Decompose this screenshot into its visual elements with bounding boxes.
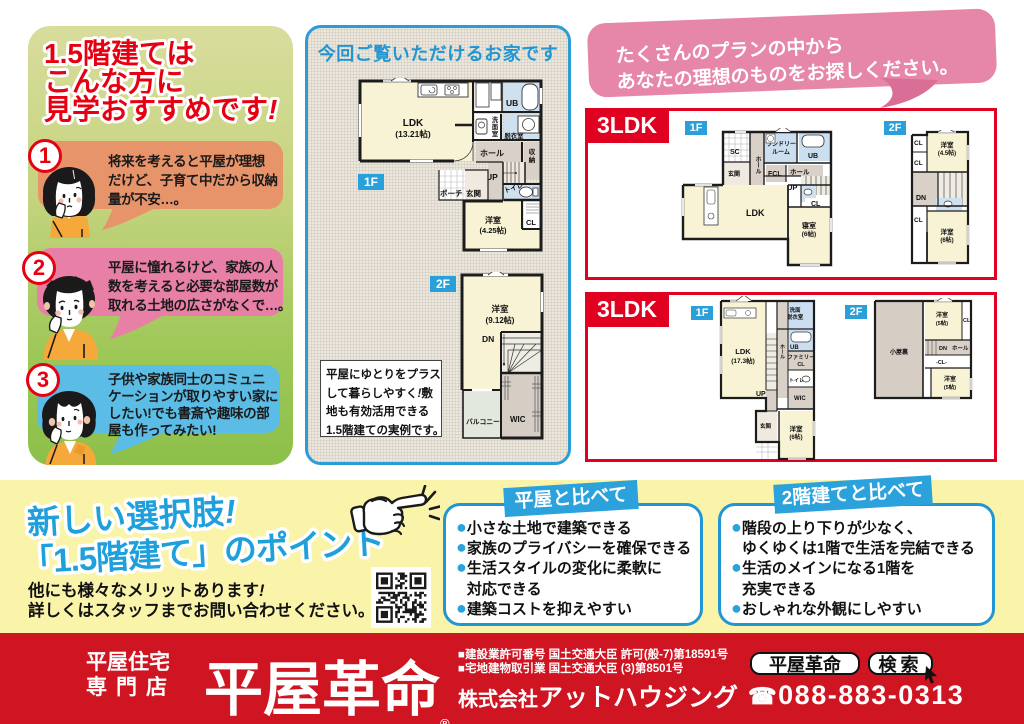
svg-text:玄関: 玄関: [466, 188, 481, 198]
svg-text:ホール: ホール: [480, 149, 504, 158]
svg-text:洋室: 洋室: [944, 375, 956, 383]
svg-text:-CL-: -CL-: [936, 360, 947, 366]
svg-text:室: 室: [492, 129, 499, 138]
svg-text:ポーチ: ポーチ: [440, 188, 463, 198]
svg-text:たくさんのプランの中から: たくさんのプランの中から: [615, 34, 844, 67]
svg-text:CL: CL: [914, 140, 923, 147]
svg-text:玄関: 玄関: [760, 422, 772, 430]
svg-text:脱衣室: 脱衣室: [787, 313, 804, 321]
svg-text:見学おすすめです!: 見学おすすめです!: [44, 93, 277, 125]
svg-text:ホール: ホール: [952, 345, 969, 352]
svg-text:DN: DN: [482, 334, 494, 344]
svg-text:洗面: 洗面: [789, 306, 801, 314]
svg-text:UB: UB: [790, 345, 799, 351]
svg-text:洗: 洗: [492, 115, 499, 124]
svg-text:CL: CL: [914, 217, 923, 224]
svg-text:(13.21帖): (13.21帖): [395, 129, 431, 139]
svg-text:トイレ: トイレ: [789, 378, 804, 384]
svg-text:(17.3帖): (17.3帖): [731, 356, 754, 365]
svg-text:洋室: 洋室: [941, 227, 955, 236]
svg-text:LDK: LDK: [735, 347, 751, 356]
svg-text:面: 面: [492, 123, 499, 131]
svg-text:(6帖): (6帖): [789, 433, 802, 441]
svg-text:CL: CL: [797, 362, 805, 368]
svg-text:DN: DN: [939, 346, 947, 352]
svg-text:(9.12帖): (9.12帖): [486, 315, 515, 325]
svg-text:CL: CL: [914, 160, 923, 167]
svg-text:(6帖): (6帖): [802, 229, 816, 238]
svg-text:(6帖): (6帖): [940, 236, 953, 244]
svg-text:CL: CL: [526, 218, 536, 227]
svg-text:ファミリー: ファミリー: [787, 354, 815, 361]
svg-text:ホール: ホール: [790, 168, 810, 176]
svg-text:DN: DN: [916, 195, 926, 202]
svg-text:洋室: 洋室: [936, 311, 948, 319]
svg-text:ホール: ホール: [779, 343, 785, 359]
svg-text:洋室: 洋室: [790, 424, 804, 433]
svg-text:寝室: 寝室: [802, 221, 816, 230]
svg-text:収: 収: [529, 147, 536, 156]
svg-text:洋室: 洋室: [941, 140, 955, 149]
svg-text:ホール: ホール: [754, 156, 761, 174]
svg-text:納: 納: [529, 155, 536, 164]
svg-text:LDK: LDK: [403, 118, 424, 129]
svg-text:FCL: FCL: [768, 171, 782, 178]
svg-text:(5帖): (5帖): [944, 383, 956, 391]
svg-text:(4.25帖): (4.25帖): [479, 225, 507, 235]
svg-text:1.5階建ては: 1.5階建ては: [44, 38, 194, 69]
svg-text:(4.5帖): (4.5帖): [938, 149, 956, 157]
svg-text:SC: SC: [730, 149, 740, 156]
svg-text:UB: UB: [808, 153, 818, 160]
svg-text:玄関: 玄関: [728, 170, 740, 178]
svg-text:こんな方に: こんな方に: [44, 65, 184, 97]
svg-text:WIC: WIC: [794, 396, 806, 402]
svg-text:WIC: WIC: [510, 415, 526, 424]
svg-text:CL: CL: [963, 318, 971, 324]
svg-text:(5帖): (5帖): [936, 319, 948, 327]
svg-text:洋室: 洋室: [491, 304, 509, 314]
svg-text:LDK: LDK: [746, 208, 765, 218]
svg-text:バルコニー: バルコニー: [466, 418, 500, 426]
svg-text:脱衣室: 脱衣室: [505, 131, 525, 140]
svg-text:UB: UB: [506, 98, 518, 108]
svg-text:小屋裏: 小屋裏: [889, 348, 909, 356]
svg-text:ルーム: ルーム: [772, 149, 790, 156]
svg-text:洋室: 洋室: [485, 215, 501, 225]
